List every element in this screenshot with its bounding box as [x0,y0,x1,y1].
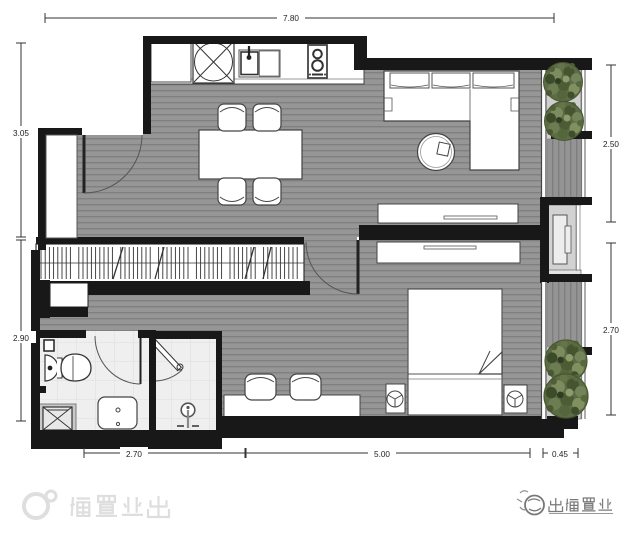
svg-text:2.70: 2.70 [603,326,619,335]
svg-text:5.00: 5.00 [374,450,390,459]
svg-text:7.80: 7.80 [283,14,299,23]
svg-text:2.70: 2.70 [126,450,142,459]
svg-text:2.50: 2.50 [603,140,619,149]
svg-text:2.90: 2.90 [13,334,29,343]
svg-text:0.45: 0.45 [552,450,568,459]
svg-text:3.05: 3.05 [13,129,29,138]
